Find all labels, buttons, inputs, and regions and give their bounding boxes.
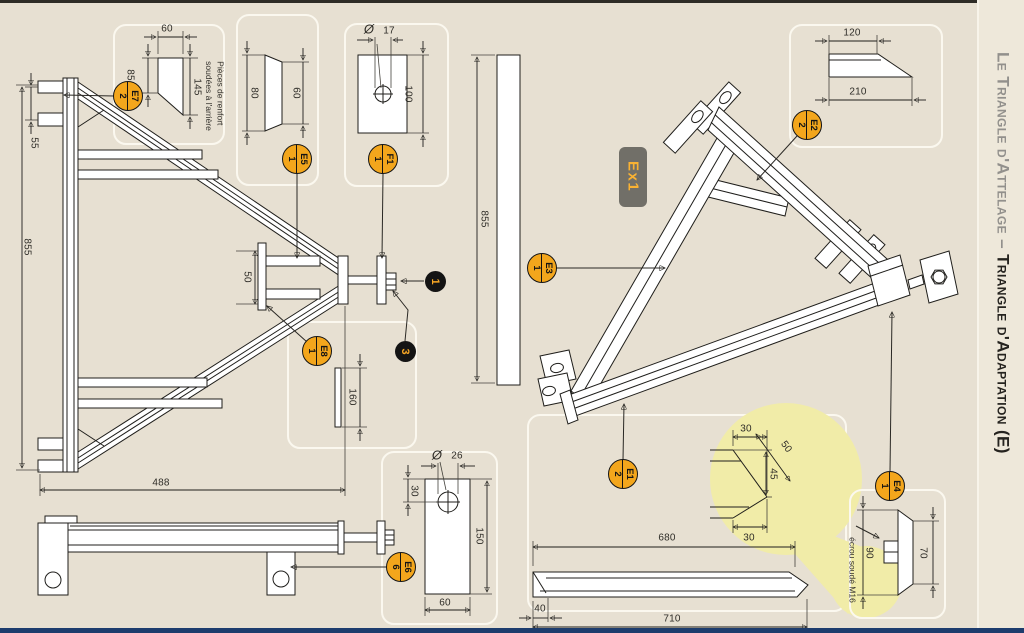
dim-e4-width: 70 [918, 547, 929, 559]
callout-e6: E6 6 [386, 552, 416, 582]
callout-ref: E3 [542, 254, 553, 282]
dim-tip-bottom: 30 [743, 533, 755, 544]
callout-qty: 2 [796, 111, 806, 139]
callout-e5: E5 1 [282, 144, 312, 174]
page-title: Le Triangle d'Attelage – Triangle d'Adap… [993, 52, 1013, 454]
dim-e6-height: 150 [474, 527, 485, 544]
dim-bar-680: 680 [658, 533, 675, 544]
callout-e2: E2 2 [792, 110, 822, 140]
diameter-symbol: Ø [364, 22, 374, 37]
callout-ref: E2 [807, 111, 818, 139]
note-line: écrou soudé M16 [846, 537, 857, 603]
note-line: Pièces de renfort [214, 61, 225, 131]
callout-qty: 1 [372, 145, 382, 173]
dim-e6-hole-offset: 30 [409, 485, 420, 497]
callout-ref: E1 [623, 460, 634, 488]
dim-frame-tab: 55 [29, 137, 40, 149]
item-marker-1: 1 [425, 271, 446, 292]
callout-e3: E3 1 [527, 253, 557, 283]
long-plate-855 [497, 55, 520, 385]
page-title-section: Triangle d'Adaptation (E) [994, 254, 1013, 454]
dim-e2-top: 120 [843, 28, 860, 39]
callout-ref: E5 [297, 145, 308, 173]
callout-qty: 1 [531, 254, 541, 282]
page-bottom-edge [0, 628, 1024, 633]
callout-e7: E7 2 [113, 81, 143, 111]
beam-side-view [38, 516, 394, 595]
dim-e7-left: 85 [125, 69, 136, 81]
dim-beam-length: 855 [479, 210, 490, 227]
dim-e2-base: 210 [849, 87, 866, 98]
page-top-edge [0, 0, 977, 3]
dim-apex-gap: 50 [242, 271, 253, 283]
callout-qty: 1 [879, 472, 889, 500]
callout-qty: 2 [117, 82, 127, 110]
sidebar: Le Triangle d'Attelage – Triangle d'Adap… [977, 0, 1024, 633]
dim-bar-710: 710 [663, 614, 680, 625]
callout-qty: 1 [306, 337, 316, 365]
drawing-page: 60 85 145 55 855 488 50 80 60 Ø 17 100 1… [0, 0, 1024, 633]
dim-e4-height: 90 [864, 547, 875, 559]
dim-e5-right: 60 [291, 87, 302, 99]
note-welded-nut: écrou soudé M16 [846, 537, 857, 603]
callout-ref: E4 [890, 472, 901, 500]
callout-qty: 6 [390, 553, 400, 581]
page-title-chapter: Le Triangle d'Attelage – [994, 52, 1013, 254]
dim-e6-dia: 26 [451, 451, 463, 462]
item-marker-3: 3 [395, 341, 416, 362]
callout-ref: E6 [401, 553, 412, 581]
example-badge: Ex1 [619, 147, 647, 207]
callout-ref: E7 [128, 82, 139, 110]
callout-ref: F1 [383, 145, 394, 173]
note-reinforcement: Pièces de renfort soudées à l'arrière [203, 61, 226, 131]
technical-drawing-canvas [0, 0, 1024, 633]
dim-e5-left: 80 [249, 87, 260, 99]
callout-e1: E1 2 [608, 459, 638, 489]
dim-e8-length: 160 [347, 388, 358, 405]
dim-e7-right: 145 [192, 78, 203, 95]
bottom-bar [533, 572, 808, 597]
dim-frame-base: 488 [152, 478, 169, 489]
note-line: soudées à l'arrière [203, 61, 214, 131]
callout-qty: 2 [612, 460, 622, 488]
callout-f1: F1 1 [368, 144, 398, 174]
callout-e4: E4 1 [875, 471, 905, 501]
dim-e7-width: 60 [161, 24, 173, 35]
dim-tip-top: 30 [740, 424, 752, 435]
dim-bar-40: 40 [534, 604, 546, 615]
dim-f1-height: 100 [403, 85, 414, 102]
dim-frame-height: 855 [22, 238, 33, 255]
diameter-symbol: Ø [432, 448, 442, 463]
dim-e6-width: 60 [439, 598, 451, 609]
callout-qty: 1 [286, 145, 296, 173]
triangle-front-view [38, 78, 396, 472]
dim-f1-dia: 17 [383, 26, 395, 37]
triangle-isometric-view [538, 82, 958, 424]
callout-e8: E8 1 [302, 336, 332, 366]
dim-tip-vert: 45 [768, 468, 779, 480]
callout-ref: E8 [317, 337, 328, 365]
